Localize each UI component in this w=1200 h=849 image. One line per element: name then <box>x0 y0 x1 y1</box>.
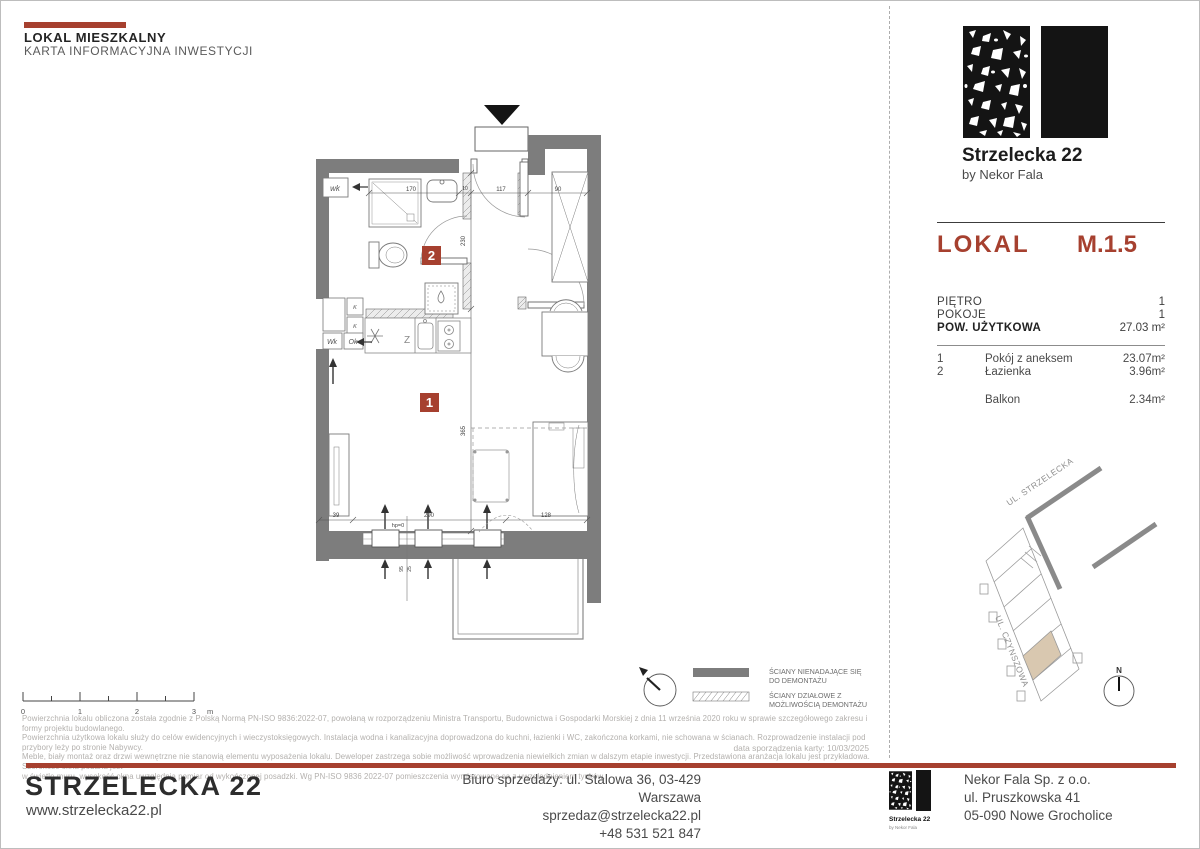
room-name: Łazienka <box>985 366 1129 378</box>
dim-label: 25 <box>407 566 413 572</box>
footer-brand: STRZELECKA 22 <box>25 771 263 802</box>
scale-bar: 0 1 2 3 m <box>21 692 213 716</box>
radiator <box>372 530 399 547</box>
legend-solid-swatch <box>693 668 749 677</box>
attr-label: POKOJE <box>937 309 986 321</box>
windows <box>363 530 504 547</box>
legend-solid-label2: DO DEMONTAŻU <box>769 676 827 685</box>
kitchen-sink <box>418 323 433 349</box>
room-number-bath: 2 <box>428 248 435 263</box>
brand-logo <box>963 26 1108 138</box>
door-direction-arrowhead <box>352 183 360 191</box>
attr-value: 27.03 m² <box>1120 322 1165 334</box>
attr-value: 1 <box>1159 296 1165 308</box>
shaft-tag: K <box>353 305 357 311</box>
radiator <box>474 530 501 547</box>
dim-label: 128 <box>541 513 552 519</box>
footer-logo-byline: by Nekor Fala <box>889 825 917 830</box>
wall-legend: ŚCIANY NIENADAJĄCE SIĘ DO DEMONTAŻU ŚCIA… <box>639 667 867 709</box>
developer-city: 05-090 Nowe Grocholice <box>964 807 1113 825</box>
room-row: 1 Pokój z aneksem 23.07m² <box>937 353 1165 365</box>
dim-label: 39 <box>333 513 340 519</box>
street-label-strzelecka: UL. STRZELECKA <box>1005 456 1076 508</box>
info-card-page: LOKAL MIESZKALNY KARTA INFORMACYJNA INWE… <box>0 0 1200 849</box>
kitchen-counter <box>365 318 471 353</box>
shower-drain <box>407 214 414 221</box>
sales-office-email: sprzedaz@strzelecka22.pl <box>401 807 701 825</box>
entrance-vestibule <box>475 127 528 151</box>
shaft-tag: Wk <box>327 339 338 346</box>
card-date: data sporządzenia karty: 10/03/2025 <box>601 743 869 753</box>
rug <box>473 450 509 502</box>
sales-office-block: Biuro sprzedaży: ul. Stalowa 36, 03-429 … <box>401 771 701 843</box>
room-area: 3.96m² <box>1129 366 1165 378</box>
burner-dot <box>448 343 450 345</box>
unit-number: M.1.5 <box>937 231 1137 259</box>
sink-faucet <box>440 180 444 184</box>
dim-label: 365 <box>461 425 467 436</box>
attr-row-area: POW. UŻYTKOWA 27.03 m² <box>937 322 1165 334</box>
floor-plan-svg: 170 10 117 90 230 365 39 290 128 hp=0 95… <box>1 1 881 761</box>
north-compass-icon: N <box>1104 666 1134 706</box>
entrance-marker-icon <box>484 105 520 125</box>
black-tile-icon <box>916 770 931 811</box>
black-tile-icon <box>1041 26 1108 138</box>
street-walls <box>1027 468 1156 589</box>
north-label: N <box>1116 666 1122 675</box>
developer-block: Nekor Fala Sp. z o.o. ul. Pruszkowska 41… <box>964 771 1113 825</box>
dim-label: 230 <box>461 235 467 246</box>
room-row: 2 Łazienka 3.96m² <box>937 366 1165 378</box>
sales-office-phone: +48 531 521 847 <box>401 825 701 843</box>
bed-pillow <box>549 423 564 430</box>
dim-label: 170 <box>406 187 417 193</box>
disclaimer-line: Powierzchnia lokalu obliczona została zg… <box>22 714 872 733</box>
dim-label: 95 <box>399 566 405 572</box>
footer-logo <box>889 769 935 815</box>
tv <box>334 447 339 505</box>
footer-website: www.strzelecka22.pl <box>26 802 162 819</box>
toilet-bowl <box>386 247 404 263</box>
room-no: 1 <box>937 353 985 365</box>
developer-street: ul. Pruszkowska 41 <box>964 789 1113 807</box>
attr-value: 1 <box>1159 309 1165 321</box>
room-name: Pokój z aneksem <box>985 353 1123 365</box>
room-area: 23.07m² <box>1123 353 1165 365</box>
shaft-tag: K <box>353 324 357 330</box>
balcony-area: 2.34m² <box>1129 394 1165 406</box>
footer-accent-bar <box>26 763 1176 768</box>
room-number-living: 1 <box>426 395 433 410</box>
legend-hatched-label2: MOŻLIWOŚCIĄ DEMONTAŻU <box>769 700 867 709</box>
legend-hatched-label: ŚCIANY DZIAŁOWE Z <box>769 691 842 700</box>
toilet-tank <box>369 242 379 268</box>
brand-byline: by Nekor Fala <box>962 167 1043 182</box>
fridge-symbol: Z <box>404 335 410 346</box>
brand-name: Strzelecka 22 <box>962 145 1082 167</box>
attr-label: POW. UŻYTKOWA <box>937 322 1041 334</box>
developer-name: Nekor Fala Sp. z o.o. <box>964 771 1113 789</box>
vertical-divider <box>889 6 890 758</box>
panel-rule-mid <box>937 345 1165 346</box>
attr-row-rooms: POKOJE 1 <box>937 309 1165 321</box>
room-no: 2 <box>937 366 985 378</box>
balcony-row: Balkon 2.34m² <box>937 394 1165 406</box>
attr-row-floor: PIĘTRO 1 <box>937 296 1165 308</box>
legend-hatched-swatch <box>693 692 749 701</box>
shaft-tag: wk <box>330 184 341 193</box>
kitchen-faucet <box>424 320 427 323</box>
dim-label: 90 <box>555 187 562 193</box>
dim-label: 117 <box>496 187 506 193</box>
terrazzo-tile-icon <box>963 26 1030 138</box>
burner-dot <box>448 329 450 331</box>
dim-label: 10 <box>462 186 468 192</box>
site-plan-svg: UL. STRZELECKA UL. CZYNSZOWA N <box>931 451 1181 751</box>
dim-label: hp=0 <box>392 523 404 529</box>
disclaimer-line: Meble, biały montaż oraz drzwi wewnętrzn… <box>22 752 872 771</box>
table <box>542 312 588 356</box>
terrazzo-tile-icon <box>889 771 912 809</box>
shaft-tag: Ok <box>349 339 358 346</box>
legend-solid-label: ŚCIANY NIENADAJĄCE SIĘ <box>769 667 862 676</box>
radiator <box>415 530 442 547</box>
panel-rule-top <box>937 222 1165 223</box>
footer-logo-name: Strzelecka 22 <box>889 816 930 823</box>
sales-office-address: Biuro sprzedaży: ul. Stalowa 36, 03-429 … <box>401 771 701 807</box>
balcony-name: Balkon <box>985 394 1129 406</box>
balcony <box>453 559 583 639</box>
attr-label: PIĘTRO <box>937 296 982 308</box>
shaft-arrowhead <box>329 358 337 367</box>
dim-label: 290 <box>424 513 435 519</box>
